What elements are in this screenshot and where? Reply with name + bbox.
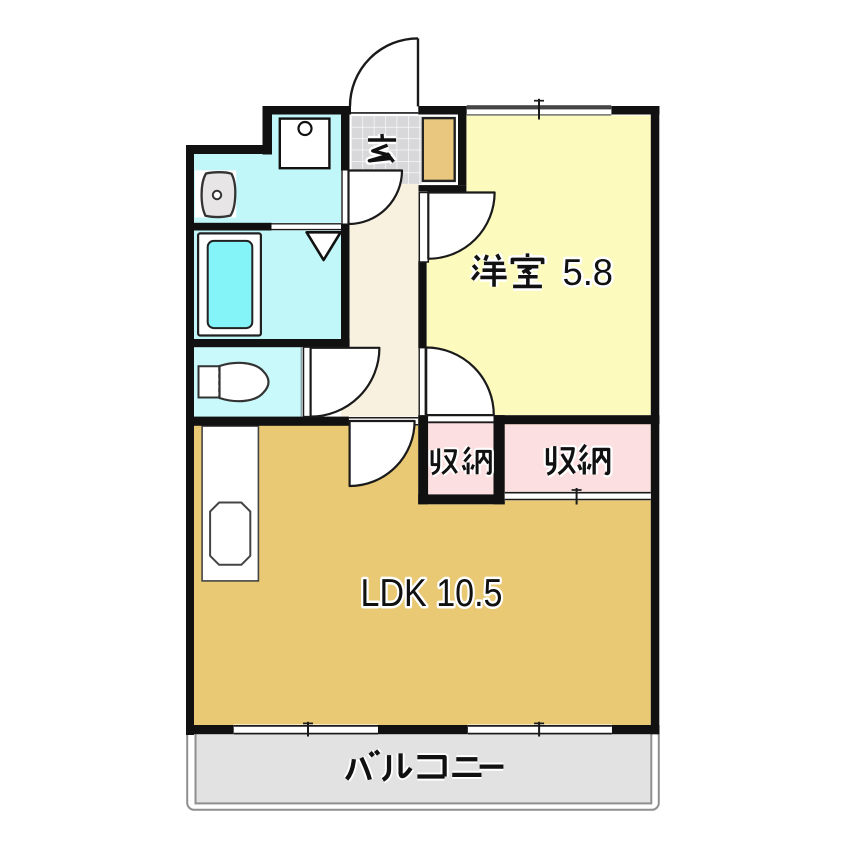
svg-text:LDK 10.5: LDK 10.5	[361, 572, 503, 615]
svg-text:5.8: 5.8	[563, 252, 614, 293]
